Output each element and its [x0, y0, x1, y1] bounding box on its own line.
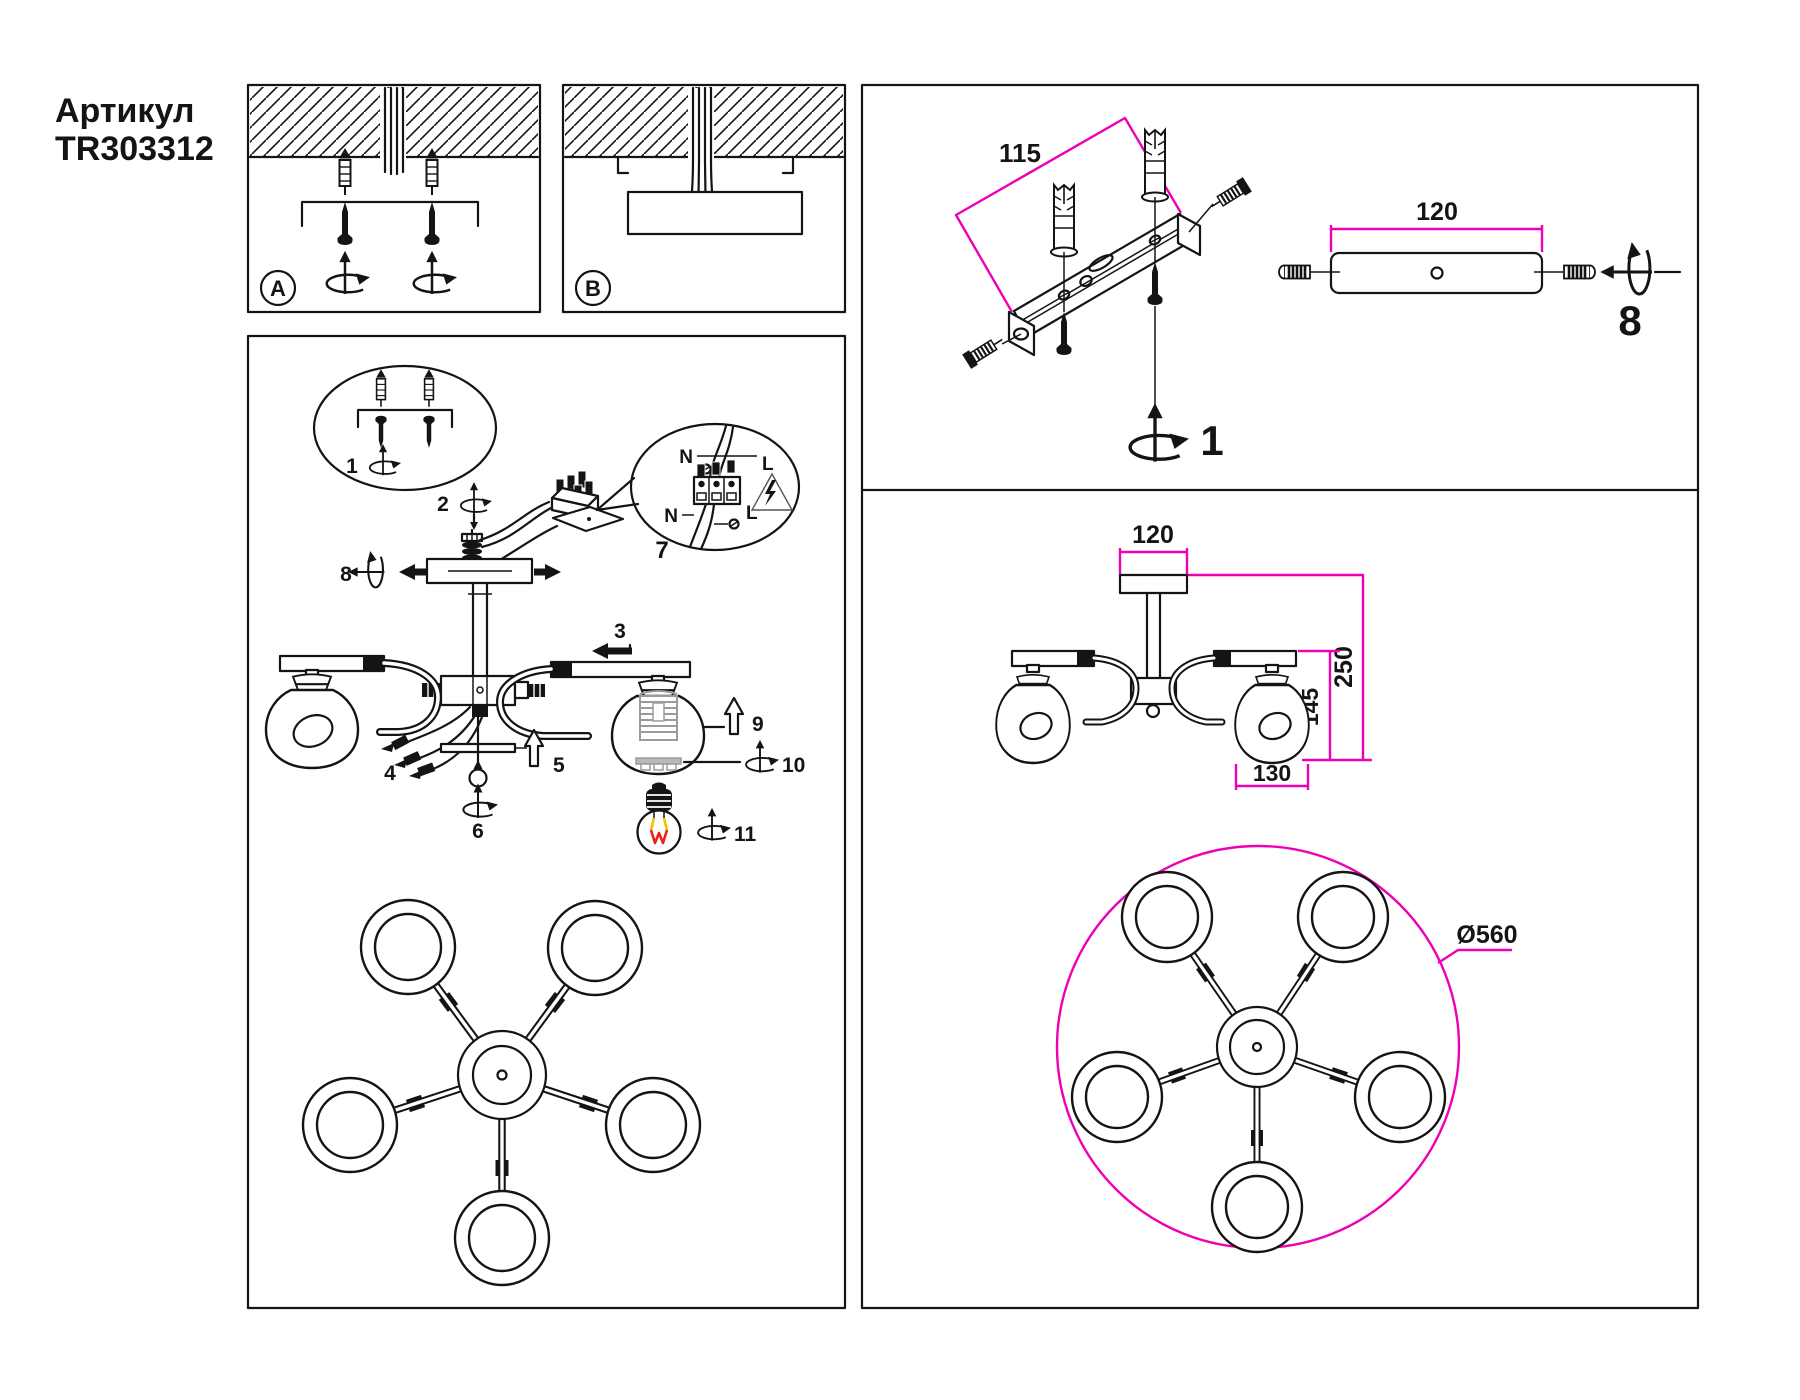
step-4-label: 4 — [384, 762, 396, 785]
hub-side-pin — [528, 684, 545, 697]
neutral-bottom-label: N — [664, 506, 678, 527]
shade-top-view — [303, 1078, 397, 1172]
step-10-label: 10 — [782, 754, 805, 777]
article-label: Артикул — [55, 92, 195, 130]
mounting-step-1-label: 1 — [1200, 417, 1223, 464]
instruction-sheet: Артикул TR303312 A — [0, 0, 1800, 1400]
variant-a-label: A — [270, 276, 286, 301]
step-1-label: 1 — [346, 455, 358, 478]
glass-shade — [996, 685, 1070, 763]
dim-120-canopy-label: 120 — [1132, 521, 1174, 549]
shade-top-view — [1298, 872, 1388, 962]
set-screw-icon — [1564, 266, 1595, 279]
dim-115-label: 115 — [999, 138, 1041, 168]
mounting-plate — [628, 192, 802, 234]
diagram-canvas: Артикул TR303312 A — [0, 0, 1800, 1400]
neutral-top-label: N — [679, 447, 693, 468]
article-number: TR303312 — [55, 130, 214, 168]
step-5-label: 5 — [553, 754, 565, 777]
shade-top-view — [1212, 1162, 1302, 1252]
assembly-panel: 1 2 — [248, 336, 845, 1308]
step-11-label: 11 — [734, 823, 757, 846]
step1-callout: 1 — [314, 366, 496, 490]
variant-b-label: B — [585, 276, 601, 301]
dim-120-plate-label: 120 — [1416, 198, 1458, 226]
shade-top-view — [1122, 872, 1212, 962]
canopy — [1120, 575, 1187, 593]
step-6-label: 6 — [472, 820, 484, 843]
line-top-label: L — [762, 454, 774, 475]
lamp-socket — [640, 691, 677, 740]
panel-b-hollow-mounting: B — [563, 85, 845, 312]
step-8-label: 8 — [340, 563, 352, 586]
shade-top-view — [361, 900, 455, 994]
panel-a-concrete-mounting: A — [248, 85, 540, 312]
title-block: Артикул TR303312 — [55, 92, 214, 168]
shade-top-view — [455, 1191, 549, 1285]
finial-ball — [1147, 705, 1159, 717]
shade-ring-seat — [636, 758, 681, 770]
step-9-label: 9 — [752, 713, 764, 736]
step-3-label: 3 — [614, 620, 626, 643]
wall-anchor-icon — [1051, 185, 1077, 257]
terminal-block-front — [694, 460, 740, 504]
shade-top-view — [606, 1078, 700, 1172]
shade-top-view — [1072, 1052, 1162, 1142]
step-2-label: 2 — [437, 493, 449, 516]
step-7-label: 7 — [655, 537, 668, 564]
shade-top-view — [548, 901, 642, 995]
glass-shade — [266, 690, 358, 768]
shade-top-view — [1355, 1052, 1445, 1142]
glass-shade — [1235, 685, 1309, 763]
wall-anchor-icon — [1142, 130, 1168, 202]
dim-diameter-label: Ø560 — [1456, 921, 1517, 949]
dim-250-label: 250 — [1330, 646, 1358, 688]
set-screw-icon — [1279, 266, 1310, 279]
mounting-step-8-label: 8 — [1618, 297, 1641, 344]
